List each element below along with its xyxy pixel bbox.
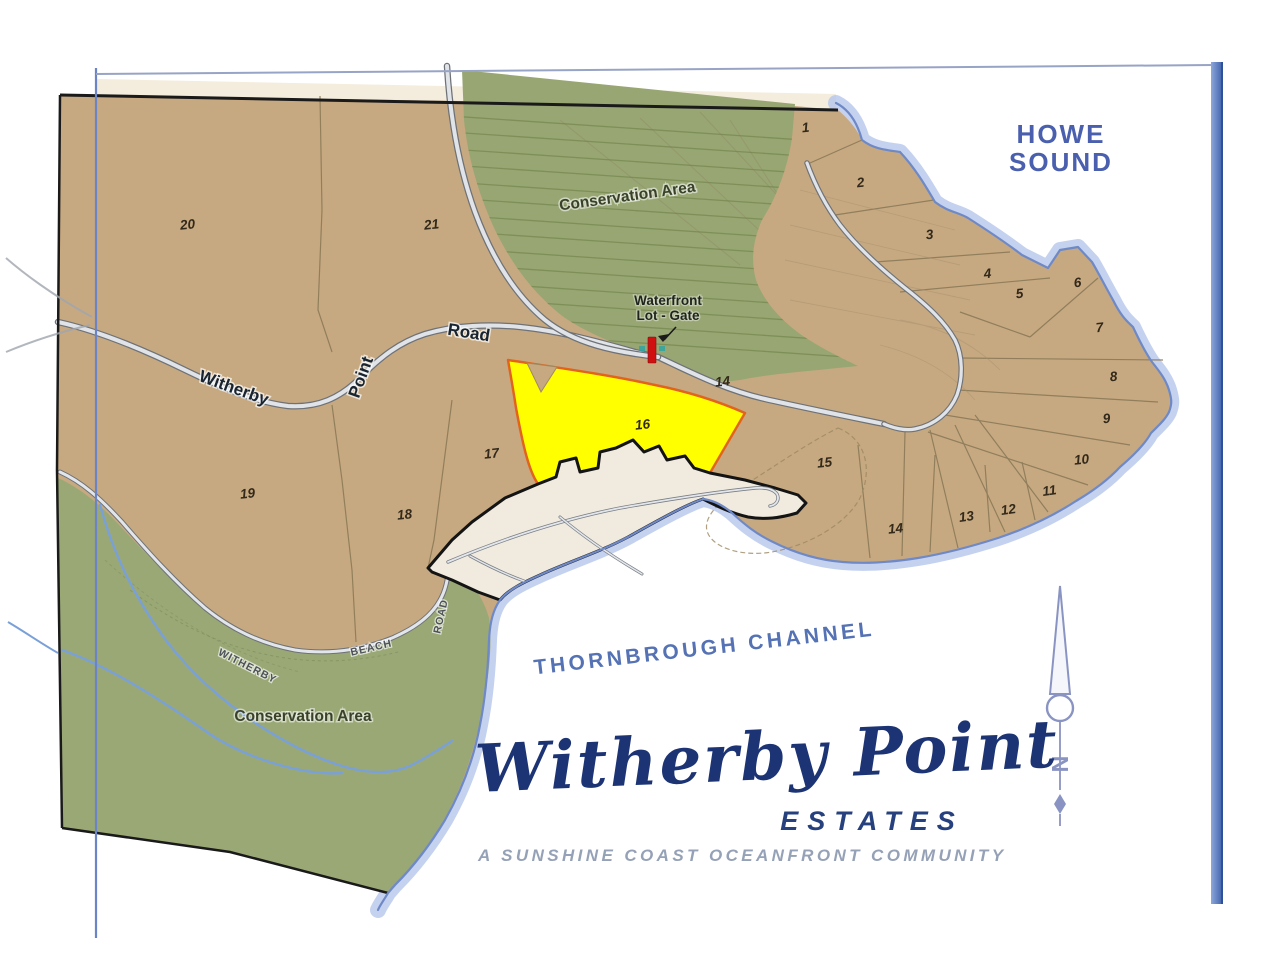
lot-number-16: 16 — [634, 416, 651, 433]
lot-number-11: 11 — [1041, 482, 1057, 499]
compass-diamond — [1054, 794, 1066, 814]
plat-map-page: HOWE SOUND THORNBROUGH CHANNEL Conservat… — [0, 0, 1280, 960]
lot-number-10: 10 — [1073, 451, 1090, 468]
lot-number-21: 21 — [422, 216, 440, 233]
witherby-point-map: HOWE SOUND THORNBROUGH CHANNEL Conservat… — [0, 0, 1280, 960]
map-title-script: Witherby Point — [473, 705, 1060, 808]
conservation-area-bottom-label: Conservation Area — [234, 708, 372, 725]
frame-right-bar — [1211, 62, 1223, 904]
lot-number-12: 12 — [1000, 501, 1017, 518]
lot-number-19: 19 — [239, 485, 256, 502]
map-title-tagline: A SUNSHINE COAST OCEANFRONT COMMUNITY — [477, 846, 1006, 865]
thornbrough-channel-label: THORNBROUGH CHANNEL — [533, 618, 876, 680]
lot-number-14: 14 — [714, 373, 731, 390]
lot-number-20: 20 — [178, 216, 196, 233]
lot-number-13: 13 — [958, 508, 975, 525]
lot-number-1: 1 — [801, 120, 810, 136]
waterfront-gate-label-line1: Waterfront — [634, 293, 702, 308]
lot-number-18: 18 — [396, 506, 413, 523]
waterfront-gate-label-line2: Lot - Gate — [637, 308, 700, 323]
lot-number-14: 14 — [887, 520, 904, 537]
map-title-estates: ESTATES — [780, 806, 964, 836]
offmap-creek-stub — [8, 622, 58, 653]
compass-needle — [1050, 586, 1070, 694]
lot-number-15: 15 — [816, 454, 833, 471]
howe-sound-label-line1: HOWE — [1017, 119, 1106, 149]
frame-top-line — [96, 65, 1213, 74]
howe-sound-label-line2: SOUND — [1009, 147, 1113, 177]
